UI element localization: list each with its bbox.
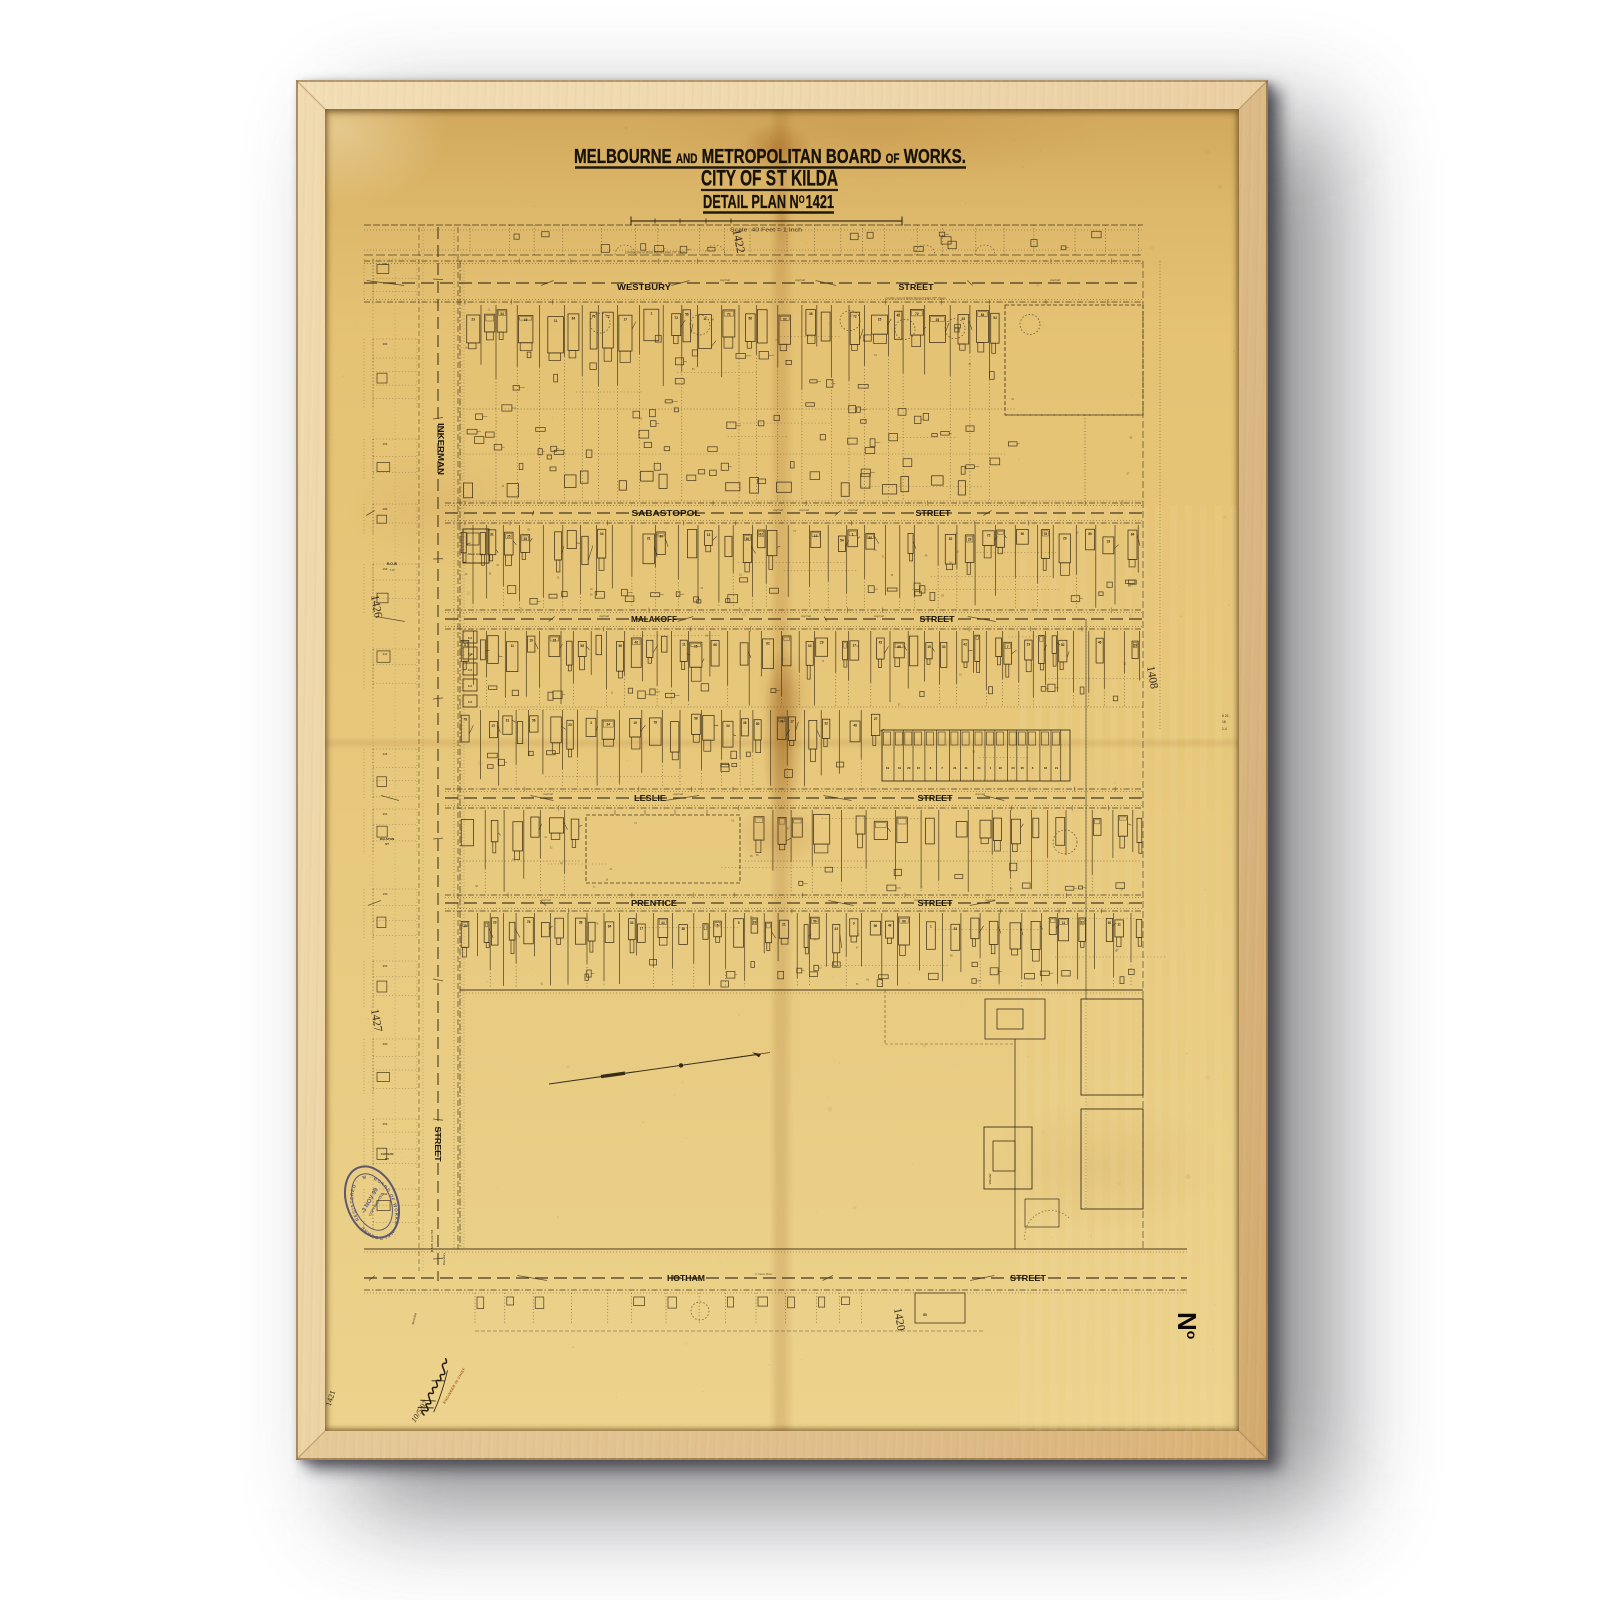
svg-text:68: 68 — [475, 885, 478, 888]
svg-text:57: 57 — [955, 532, 958, 535]
svg-text:STREET: STREET — [916, 508, 952, 518]
svg-text:78: 78 — [463, 718, 467, 722]
svg-text:72: 72 — [915, 312, 919, 316]
svg-text:82: 82 — [1061, 643, 1065, 647]
svg-text:19: 19 — [633, 721, 637, 725]
svg-text:78: 78 — [1044, 532, 1048, 536]
svg-text:1-4: 1-4 — [1222, 727, 1227, 731]
svg-text:9: 9 — [853, 921, 855, 925]
svg-text:BALSTON: BALSTON — [380, 837, 394, 841]
svg-text:76: 76 — [592, 315, 596, 319]
svg-text:18: 18 — [956, 551, 959, 554]
svg-text:353: 353 — [383, 1122, 388, 1126]
svg-text:84: 84 — [1131, 533, 1135, 537]
svg-text:19: 19 — [753, 921, 757, 925]
svg-text:Albion Hotel: Albion Hotel — [467, 552, 482, 556]
svg-text:29: 29 — [968, 537, 972, 541]
svg-text:80: 80 — [1088, 532, 1092, 536]
svg-text:32: 32 — [824, 722, 828, 726]
svg-text:1421: 1421 — [325, 1389, 337, 1407]
svg-text:74: 74 — [775, 339, 778, 342]
svg-text:72: 72 — [853, 315, 857, 319]
svg-text:63: 63 — [973, 751, 976, 754]
svg-text:21: 21 — [1055, 766, 1059, 770]
svg-text:66: 66 — [590, 593, 593, 596]
svg-text:33: 33 — [493, 920, 497, 924]
svg-text:353: 353 — [383, 964, 388, 968]
svg-text:38: 38 — [890, 574, 893, 577]
svg-text:80: 80 — [756, 722, 760, 726]
svg-text:19: 19 — [529, 639, 533, 643]
svg-text:44: 44 — [661, 921, 665, 925]
svg-text:153: 153 — [383, 442, 388, 446]
svg-text:Asphalt: Asphalt — [794, 278, 805, 282]
svg-text:11: 11 — [1117, 922, 1121, 926]
svg-text:52: 52 — [550, 847, 553, 850]
svg-text:67: 67 — [787, 828, 790, 831]
svg-text:CHUSAN: CHUSAN — [381, 1152, 394, 1156]
svg-text:12: 12 — [1123, 663, 1126, 666]
svg-text:54: 54 — [993, 316, 997, 320]
svg-text:5: 5 — [717, 924, 719, 928]
svg-text:77: 77 — [593, 886, 596, 889]
svg-text:44: 44 — [711, 318, 714, 321]
svg-text:62: 62 — [1011, 398, 1014, 401]
svg-text:62: 62 — [759, 533, 763, 537]
svg-text:160: 160 — [383, 892, 388, 896]
svg-text:56: 56 — [685, 312, 689, 316]
svg-text:1420: 1420 — [891, 1307, 907, 1332]
svg-text:79: 79 — [793, 530, 796, 533]
svg-text:56: 56 — [856, 983, 859, 986]
svg-text:42: 42 — [879, 641, 883, 645]
svg-text:11: 11 — [965, 766, 969, 770]
svg-text:15: 15 — [553, 638, 557, 642]
svg-text:55: 55 — [941, 595, 944, 598]
svg-text:78: 78 — [780, 720, 784, 724]
svg-text:65: 65 — [692, 368, 695, 371]
svg-text:34: 34 — [500, 312, 504, 316]
svg-text:344: 344 — [468, 668, 473, 672]
svg-text:43: 43 — [1116, 948, 1119, 951]
svg-text:7 ch: 7 ch — [390, 568, 395, 572]
svg-text:Asphalt: Asphalt — [974, 792, 985, 796]
svg-text:17: 17 — [640, 927, 644, 931]
svg-text:56: 56 — [618, 644, 622, 648]
svg-text:Asphalt: Asphalt — [542, 792, 553, 796]
svg-text:13: 13 — [857, 933, 860, 936]
svg-text:16: 16 — [1222, 720, 1226, 724]
svg-text:Asphalt: Asphalt — [847, 508, 858, 512]
svg-text:25: 25 — [507, 535, 511, 539]
svg-text:INKERMAN: INKERMAN — [436, 423, 446, 475]
svg-text:212: 212 — [383, 652, 388, 656]
svg-text:15: 15 — [694, 645, 698, 649]
svg-text:78: 78 — [654, 720, 658, 724]
svg-text:42: 42 — [963, 642, 967, 646]
svg-text:84: 84 — [981, 313, 985, 317]
svg-text:37: 37 — [1127, 473, 1130, 476]
svg-text:62: 62 — [766, 641, 770, 645]
svg-text:66: 66 — [902, 920, 906, 924]
svg-text:36: 36 — [746, 537, 750, 541]
svg-text:66: 66 — [750, 855, 753, 858]
svg-text:32: 32 — [949, 537, 953, 541]
svg-text:344: 344 — [468, 684, 473, 688]
svg-text:27: 27 — [492, 724, 496, 728]
svg-text:30: 30 — [1108, 921, 1112, 925]
svg-text:25: 25 — [750, 916, 753, 919]
svg-text:51: 51 — [959, 674, 962, 677]
svg-text:351: 351 — [383, 812, 388, 816]
svg-text:65: 65 — [640, 418, 643, 421]
svg-text:Asphalt: Asphalt — [800, 614, 811, 618]
svg-text:6 21,: 6 21, — [1222, 714, 1230, 718]
svg-text:63: 63 — [731, 819, 734, 822]
svg-text:Boundary: Boundary — [442, 1252, 446, 1265]
svg-text:23: 23 — [471, 318, 475, 322]
svg-text:31: 31 — [506, 718, 510, 722]
svg-text:STREET: STREET — [918, 793, 954, 803]
svg-text:6: 6 — [1032, 766, 1034, 770]
svg-text:74: 74 — [634, 822, 637, 825]
svg-text:C mess Rise: C mess Rise — [755, 1272, 772, 1276]
svg-text:50: 50 — [1021, 532, 1025, 536]
svg-text:20: 20 — [920, 886, 923, 889]
svg-text:34: 34 — [600, 532, 604, 536]
svg-text:Asphalt: Asphalt — [873, 614, 884, 618]
svg-text:60: 60 — [1130, 437, 1133, 440]
svg-text:59: 59 — [465, 347, 468, 350]
svg-text:62: 62 — [1076, 531, 1079, 534]
svg-text:33: 33 — [834, 927, 838, 931]
svg-text:163: 163 — [383, 567, 388, 571]
svg-text:15: 15 — [927, 645, 931, 649]
svg-text:25: 25 — [936, 318, 940, 322]
svg-text:18: 18 — [1044, 766, 1048, 770]
svg-text:23: 23 — [907, 766, 911, 770]
svg-text:344: 344 — [468, 700, 473, 704]
svg-text:17: 17 — [790, 719, 794, 723]
svg-text:66: 66 — [866, 978, 869, 981]
svg-text:33: 33 — [808, 644, 812, 648]
svg-text:66: 66 — [897, 645, 901, 649]
svg-text:15: 15 — [496, 564, 499, 567]
svg-text:56: 56 — [813, 920, 817, 924]
svg-text:25: 25 — [1021, 766, 1025, 770]
svg-text:26: 26 — [606, 879, 609, 882]
svg-text:Asphalt: Asphalt — [913, 898, 924, 902]
svg-text:29: 29 — [820, 641, 824, 645]
svg-text:46: 46 — [634, 640, 638, 644]
svg-text:60: 60 — [923, 1313, 927, 1317]
svg-text:67: 67 — [856, 947, 859, 950]
svg-text:R.O.W: R.O.W — [387, 562, 398, 566]
svg-text:21: 21 — [953, 766, 957, 770]
svg-text:33: 33 — [962, 317, 966, 321]
svg-text:22: 22 — [739, 574, 742, 577]
svg-text:38: 38 — [809, 312, 813, 316]
svg-text:34: 34 — [726, 724, 730, 728]
svg-text:49: 49 — [925, 554, 928, 557]
svg-text:383: 383 — [383, 342, 388, 346]
svg-text:33: 33 — [630, 921, 634, 925]
svg-text:MALAKOFF: MALAKOFF — [631, 614, 677, 624]
svg-text:67: 67 — [898, 704, 901, 707]
svg-text:Asphalt: Asphalt — [1049, 278, 1060, 282]
svg-text:344: 344 — [468, 636, 473, 640]
svg-text:20: 20 — [1011, 766, 1015, 770]
svg-text:STREET: STREET — [433, 1127, 443, 1163]
svg-text:56: 56 — [749, 316, 753, 320]
svg-text:72: 72 — [987, 533, 991, 537]
svg-text:66: 66 — [756, 854, 759, 857]
svg-text:34: 34 — [942, 645, 946, 649]
svg-text:73: 73 — [821, 660, 824, 663]
svg-text:56: 56 — [874, 924, 878, 928]
svg-text:Asphalt: Asphalt — [598, 614, 609, 618]
svg-text:7: 7 — [1007, 645, 1009, 649]
svg-text:289: 289 — [383, 507, 388, 511]
svg-text:71: 71 — [882, 556, 885, 559]
svg-text:ST: ST — [385, 842, 389, 846]
svg-text:13: 13 — [707, 533, 711, 537]
svg-text:59: 59 — [1010, 888, 1013, 891]
svg-text:72: 72 — [727, 312, 731, 316]
svg-text:12: 12 — [488, 308, 491, 311]
svg-text:20: 20 — [590, 588, 593, 591]
svg-text:5: 5 — [738, 921, 740, 925]
svg-text:34: 34 — [544, 836, 547, 839]
svg-text:1: 1 — [651, 312, 653, 316]
svg-text:33: 33 — [954, 927, 958, 931]
svg-text:19: 19 — [1107, 539, 1111, 543]
svg-text:Centre Line of Brick Barrel Dr: Centre Line of Brick Barrel Drain 3'0" D… — [885, 297, 946, 301]
svg-text:32: 32 — [1080, 920, 1084, 924]
svg-text:1: 1 — [990, 766, 992, 770]
svg-text:64: 64 — [874, 354, 877, 357]
svg-text:58: 58 — [580, 644, 584, 648]
svg-text:7: 7 — [941, 766, 943, 770]
svg-text:65: 65 — [527, 529, 530, 532]
svg-text:31: 31 — [647, 537, 651, 541]
svg-text:15: 15 — [917, 766, 921, 770]
svg-text:STREET: STREET — [1010, 1273, 1047, 1283]
svg-text:WESTBURY: WESTBURY — [617, 282, 671, 292]
svg-text:8: 8 — [930, 766, 932, 770]
svg-text:SABASTOPOL: SABASTOPOL — [632, 508, 701, 518]
svg-text:19: 19 — [886, 766, 890, 770]
svg-text:84: 84 — [608, 924, 612, 928]
svg-text:21: 21 — [977, 766, 981, 770]
svg-text:46: 46 — [1098, 641, 1102, 645]
svg-text:1427: 1427 — [368, 1008, 384, 1033]
svg-text:15: 15 — [878, 318, 882, 322]
svg-text:11: 11 — [611, 692, 614, 695]
svg-text:11: 11 — [554, 319, 558, 323]
svg-text:PRENTICE: PRENTICE — [631, 898, 677, 908]
svg-text:LESLIE: LESLIE — [634, 793, 666, 803]
svg-text:19: 19 — [898, 766, 902, 770]
svg-text:54: 54 — [840, 539, 844, 543]
svg-text:No: No — [1172, 1312, 1202, 1339]
svg-text:63: 63 — [700, 587, 703, 590]
svg-text:Asphalt: Asphalt — [772, 508, 783, 512]
svg-text:HOTHAM: HOTHAM — [667, 1273, 705, 1283]
svg-text:3: 3 — [590, 721, 592, 725]
svg-text:Centre Line of Brick Barrel Dr: Centre Line of Brick Barrel Drain 2'6" D… — [625, 251, 686, 255]
svg-text:56: 56 — [868, 536, 872, 540]
svg-text:M.M.B. Cont 746: M.M.B. Cont 746 — [430, 1229, 434, 1252]
svg-text:15: 15 — [524, 318, 528, 322]
svg-text:226: 226 — [383, 752, 388, 756]
svg-text:32: 32 — [783, 318, 787, 322]
svg-text:360: 360 — [383, 1042, 388, 1046]
svg-text:61: 61 — [541, 982, 544, 985]
svg-text:78: 78 — [596, 923, 599, 926]
svg-text:84: 84 — [572, 316, 576, 320]
svg-text:1: 1 — [852, 532, 854, 536]
svg-text:21: 21 — [609, 868, 612, 871]
svg-text:38: 38 — [523, 537, 527, 541]
svg-text:49: 49 — [465, 573, 468, 576]
svg-text:19: 19 — [1027, 643, 1031, 647]
svg-text:21: 21 — [897, 312, 900, 315]
svg-text:DETAIL PLAN NO1421: DETAIL PLAN NO1421 — [703, 191, 834, 212]
svg-text:3: 3 — [464, 643, 466, 647]
svg-text:11: 11 — [703, 317, 707, 321]
svg-text:22: 22 — [999, 766, 1003, 770]
svg-text:72: 72 — [674, 316, 678, 320]
svg-text:21: 21 — [782, 923, 786, 927]
svg-text:152: 152 — [383, 262, 388, 266]
svg-text:26: 26 — [874, 549, 877, 552]
svg-text:11: 11 — [511, 644, 515, 648]
svg-text:CITY OF S T KILDA: CITY OF S T KILDA — [701, 166, 838, 191]
svg-text:51: 51 — [557, 577, 560, 580]
svg-text:“Weralla”: “Weralla” — [988, 1173, 992, 1185]
svg-text:29: 29 — [1133, 644, 1137, 648]
svg-text:23: 23 — [568, 723, 572, 727]
svg-text:68: 68 — [950, 955, 953, 958]
svg-text:STREET: STREET — [920, 614, 956, 624]
svg-text:17: 17 — [624, 318, 628, 322]
svg-text:344: 344 — [468, 652, 473, 656]
svg-text:Asphalt: Asphalt — [719, 278, 730, 282]
svg-text:36: 36 — [502, 485, 505, 488]
svg-text:1426: 1426 — [368, 594, 384, 619]
svg-text:Municipal: Municipal — [411, 1312, 418, 1325]
svg-text:38: 38 — [489, 572, 492, 575]
svg-text:56: 56 — [532, 718, 536, 722]
svg-text:17: 17 — [1120, 888, 1123, 891]
svg-text:STREET: STREET — [899, 282, 935, 292]
svg-text:11: 11 — [682, 643, 686, 647]
svg-text:66: 66 — [713, 643, 717, 647]
svg-text:ST: ST — [385, 1157, 389, 1161]
svg-text:38: 38 — [579, 921, 583, 925]
svg-text:49: 49 — [968, 363, 971, 366]
svg-text:Asphalt: Asphalt — [672, 792, 683, 796]
svg-text:30: 30 — [659, 534, 663, 538]
svg-text:Asphalt: Asphalt — [798, 508, 809, 512]
svg-text:34: 34 — [606, 723, 610, 727]
svg-text:19: 19 — [560, 862, 563, 865]
svg-text:28: 28 — [705, 635, 708, 638]
svg-text:13: 13 — [814, 534, 818, 538]
svg-text:1: 1 — [930, 924, 932, 928]
svg-text:29: 29 — [1063, 537, 1067, 541]
svg-text:78: 78 — [527, 920, 531, 924]
svg-text:27: 27 — [874, 717, 878, 721]
svg-text:ENGINEER IN CHIEF: ENGINEER IN CHIEF — [442, 1367, 466, 1405]
svg-text:36: 36 — [743, 721, 747, 725]
svg-text:1408: 1408 — [1144, 665, 1160, 690]
svg-text:48: 48 — [853, 724, 857, 728]
svg-text:31: 31 — [490, 532, 494, 536]
svg-text:48: 48 — [888, 924, 892, 928]
svg-text:58: 58 — [694, 717, 698, 721]
